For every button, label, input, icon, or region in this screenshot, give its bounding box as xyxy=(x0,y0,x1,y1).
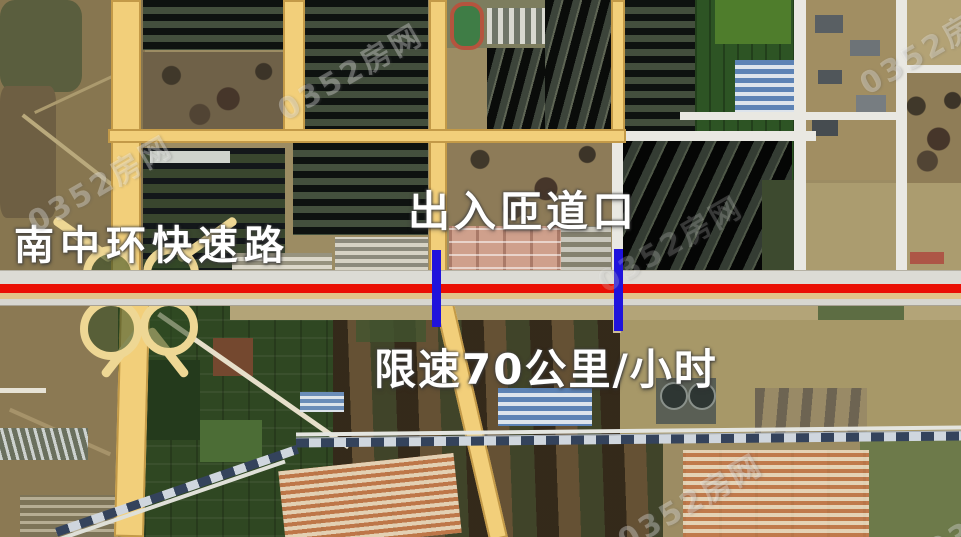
map-construction-east xyxy=(905,73,961,183)
map-building-frame xyxy=(815,15,843,33)
map-road-horizontal-ne-2 xyxy=(680,112,900,120)
map-interchange-loop xyxy=(80,298,142,360)
map-field-dark-patch xyxy=(140,360,200,440)
route-highlight-line xyxy=(0,284,961,293)
label-ramp: 出入匝道口 xyxy=(408,178,638,239)
map-field-light-green xyxy=(715,0,791,44)
map-block-highrise xyxy=(545,0,612,130)
map-factory-blue-roofs xyxy=(735,60,797,112)
map-road-vertical-far-east-1 xyxy=(794,0,806,285)
map-building-red-row xyxy=(910,252,944,264)
map-block-residential xyxy=(143,0,285,50)
map-greenhouse-rows xyxy=(0,428,88,460)
map-interchange-loop xyxy=(140,298,198,356)
map-block-construction xyxy=(143,52,285,130)
satellite-map: 南中环快速路 出入匝道口 限速70公里/小时 0352房网 0352房网 035… xyxy=(0,0,961,537)
map-road-vertical-east-yellow xyxy=(611,0,625,142)
map-building-frame xyxy=(818,70,842,84)
map-field-light-green-patch xyxy=(200,420,262,462)
map-road-vertical-center xyxy=(429,0,447,287)
map-road-minor-west xyxy=(0,388,46,393)
map-area-scrub-patch xyxy=(0,0,82,92)
map-road-horizontal-white xyxy=(626,131,816,141)
map-school-buildings xyxy=(487,8,545,44)
map-road-horizontal-yellow xyxy=(108,129,626,143)
label-speed-limit: 限速70公里/小时 xyxy=(374,336,718,397)
map-sheds-blue xyxy=(300,392,344,412)
map-stadium-track xyxy=(450,2,484,50)
map-block-highrise xyxy=(487,48,545,130)
ramp-marker-left xyxy=(432,250,441,327)
